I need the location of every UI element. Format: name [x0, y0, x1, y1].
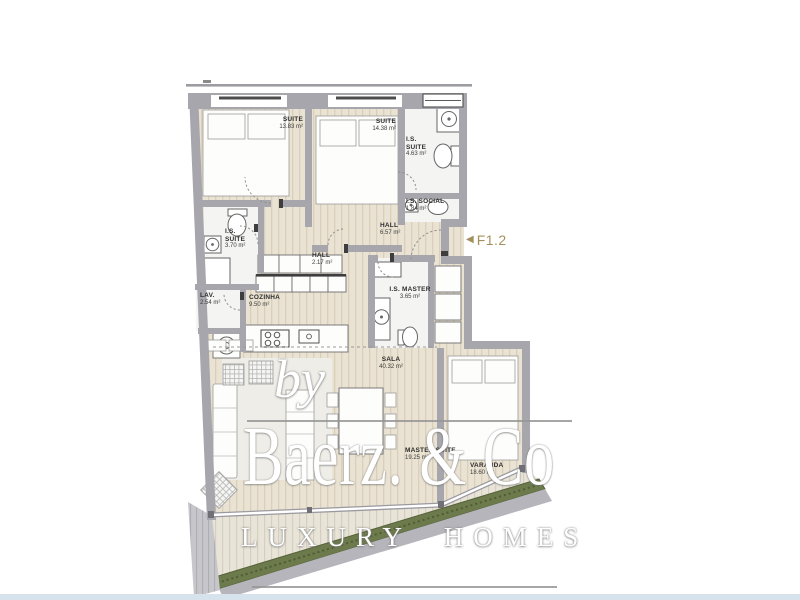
hall-closets	[258, 255, 342, 273]
kitchen-counter	[244, 325, 348, 352]
watermark-rule-top	[247, 420, 572, 422]
bed-suite1	[203, 110, 289, 196]
tv-sideboard	[208, 340, 253, 351]
pouf-icon	[249, 361, 273, 384]
unit-marker: ◀ F1.2	[466, 232, 507, 248]
shower-icon	[373, 262, 401, 277]
canopy-line	[186, 84, 472, 87]
sink-icon	[373, 298, 390, 340]
unit-label: F1.2	[477, 232, 507, 248]
shelf-unit	[286, 390, 314, 480]
kitchen-tall-units	[256, 274, 346, 292]
bottom-edge-line	[0, 594, 800, 600]
wall-right-master	[522, 341, 530, 473]
wall-sala-master	[437, 348, 444, 506]
toilet-icon	[398, 327, 418, 347]
pouf-icon	[223, 364, 244, 385]
sink-icon	[204, 236, 221, 253]
arrow-left-icon: ◀	[466, 235, 474, 245]
toilet-icon	[428, 200, 448, 215]
sofa-icon	[213, 384, 237, 478]
sink-icon	[404, 198, 418, 212]
bed-master	[448, 356, 518, 460]
windows	[211, 94, 463, 107]
sink-icon	[437, 106, 461, 132]
toilet-icon	[228, 209, 247, 236]
watermark-rule-bottom	[252, 586, 557, 588]
floorplan-page: .wall{fill:#a6a6ac;} .furn{fill:#fdfdfc;…	[0, 0, 800, 600]
wardrobes-master	[435, 266, 461, 343]
shower-icon	[204, 258, 230, 285]
floorplan-drawing: .wall{fill:#a6a6ac;} .furn{fill:#fdfdfc;…	[0, 0, 800, 600]
bed-suite2	[316, 116, 398, 204]
toilet-icon	[434, 144, 461, 168]
